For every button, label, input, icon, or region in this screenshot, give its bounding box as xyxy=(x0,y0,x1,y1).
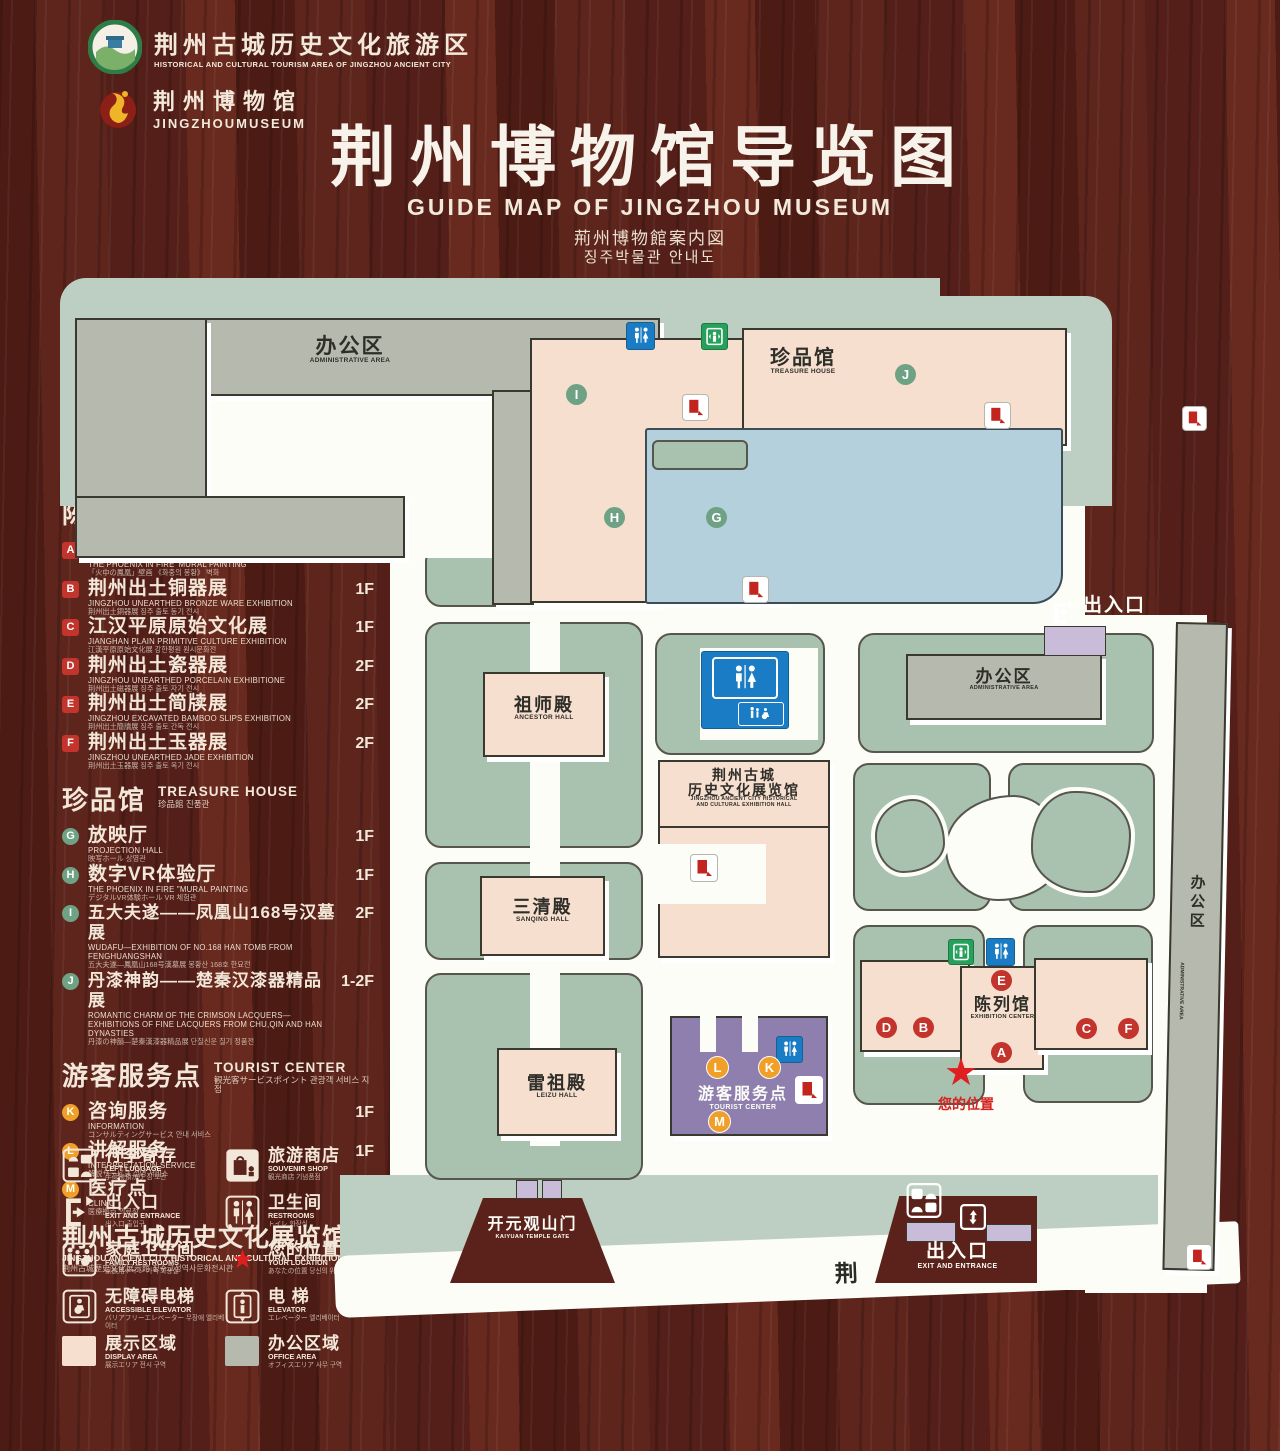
facility-left-luggage: 行李寄存LEFT LUGGAGE手荷物預かり 짐 보관 xyxy=(62,1146,225,1193)
luggage-scanner-icon xyxy=(906,1182,942,1219)
facility-family-restrooms: 家庭卫生间FAMILY RESTROOMS家族用トイレ 가족 화장실 xyxy=(62,1240,225,1287)
badge-c: C xyxy=(62,619,79,636)
item-sub: 丹漆の神韻—楚秦漢漆器精品展 단칠신운 칠기 정품전 xyxy=(88,1038,336,1047)
exhibition-hall-label-block: 荆州古城 历史文化展览馆 JINGZHOU ANCIENT CITY HISTO… xyxy=(658,760,830,830)
facility-en: YOUR LOCATION xyxy=(268,1259,342,1268)
exhibition-hall-label-en2: AND CULTURAL EXHIBITION HALL xyxy=(660,803,828,808)
exit-icon xyxy=(1050,600,1077,627)
legend-office-area: 办公区域OFFICE AREAオフィスエリア 사무 구역 xyxy=(225,1334,388,1381)
sanqing-hall-label: 三清殿 SANQING HALL xyxy=(482,898,603,924)
exhibition-center-label-cn: 陈列馆 xyxy=(945,996,1060,1014)
legend-item-g: G放映厅PROJECTION HALL映写ホール 상영관1F xyxy=(62,826,374,864)
facility-accessible-elevator: 无障碍电梯ACCESSIBLE ELEVATORバリアフリーエレベーター 무장애… xyxy=(62,1287,225,1334)
elevator-icon xyxy=(225,1289,260,1324)
facility-sub: トイレ 화장실 xyxy=(268,1221,322,1229)
item-cn: 咨询服务 xyxy=(88,1102,336,1122)
item-sub: コンサルティングサービス 안내 서비스 xyxy=(88,1131,336,1140)
legend-item-h: H数字VR体验厅THE PHOENIX IN FIRE "MURAL PAINT… xyxy=(62,865,374,903)
item-cn: 荆州出土瓷器展 xyxy=(88,656,336,676)
map-badge-g: G xyxy=(706,507,727,528)
exit-bottom-label-en: EXIT AND ENTRANCE xyxy=(895,1263,1020,1271)
restroom-icon xyxy=(986,938,1015,966)
exit-icon xyxy=(62,1195,97,1230)
facility-en: OFFICE AREA xyxy=(268,1353,342,1362)
legend-item-d: D荆州出土瓷器展JINGZHOU UNEARTHED PORCELAIN EXH… xyxy=(62,656,374,694)
facility-en: DISPLAY AREA xyxy=(105,1353,177,1362)
facility-en: EXIT AND ENTRANCE xyxy=(105,1212,180,1221)
facility-sub: 出入口 출입구 xyxy=(105,1221,180,1229)
admin-r-label-cn: 办公区 xyxy=(908,668,1100,686)
facility-en: LEFT LUGGAGE xyxy=(105,1165,177,1174)
item-sub: 荆州出土簡牘展 징주 출토 간독 전시 xyxy=(88,723,336,732)
facility-en: FAMILY RESTROOMS xyxy=(105,1259,195,1268)
admin-strip-label-en: ADMINISTRATIVE AREA xyxy=(1178,962,1185,1020)
gate-pillar xyxy=(516,1180,538,1199)
facility-en: ACCESSIBLE ELEVATOR xyxy=(105,1306,225,1315)
facility-cn: 家庭卫生间 xyxy=(105,1240,195,1259)
admin-tl-label: 办公区 ADMINISTRATIVE AREA xyxy=(255,336,445,365)
facility-en: RESTROOMS xyxy=(268,1212,322,1221)
item-cn: 荆州出土玉器展 xyxy=(88,733,336,753)
restroom-icon xyxy=(626,322,655,350)
family-restroom-icon xyxy=(738,702,784,726)
legend-item-e: E荆州出土简牍展JINGZHOU EXCAVATED BAMBOO SLIPS … xyxy=(62,694,374,732)
item-cn: 数字VR体验厅 xyxy=(88,865,336,885)
family-restroom-icon xyxy=(62,1242,97,1277)
museum-guide-map-sign: { "header": { "logo1_cn": "荆州古城历史文化旅游区",… xyxy=(0,0,1280,1451)
restroom-icon xyxy=(712,657,778,699)
facility-cn: 行李寄存 xyxy=(105,1146,177,1165)
item-sub: 映写ホール 상영관 xyxy=(88,855,336,864)
kaiyuan-gate-label-en: KAIYUAN TEMPLE GATE xyxy=(455,1234,610,1240)
elevator-icon-red xyxy=(1186,1244,1212,1270)
your-location-star-icon: ★ xyxy=(225,1242,260,1277)
gate-barrier xyxy=(906,1222,956,1242)
facility-sub: 手荷物預かり 짐 보관 xyxy=(105,1174,177,1182)
admin-tl-label-cn: 办公区 xyxy=(255,336,445,358)
facility-sub: オフィスエリア 사무 구역 xyxy=(268,1362,342,1370)
lake-planting xyxy=(652,440,748,470)
badge-d: D xyxy=(62,658,79,675)
item-cn: 放映厅 xyxy=(88,826,336,846)
tourist-center-label: 游客服务点 TOURIST CENTER xyxy=(678,1086,808,1111)
page-title-cn: 荆州博物馆导览图 xyxy=(240,104,1060,200)
elevator-icon-red xyxy=(682,394,709,421)
ancestor-hall-label: 祖师殿 ANCESTOR HALL xyxy=(485,696,603,722)
admin-tl-label-en: ADMINISTRATIVE AREA xyxy=(255,358,445,365)
facility-exit-entrance: 出入口EXIT AND ENTRANCE出入口 출입구 xyxy=(62,1193,225,1240)
legend-display-area: 展示区域DISPLAY AREA展示エリア 전시 구역 xyxy=(62,1334,225,1381)
item-cn: 荆州出土简牍展 xyxy=(88,694,336,714)
map-badge-e: E xyxy=(991,970,1012,991)
garden-area xyxy=(853,763,1155,913)
item-floor: 2F xyxy=(336,733,374,771)
exit-tr-label-en: EXIT AND ENTRANCE xyxy=(1083,617,1203,625)
elevator-icon-red xyxy=(1182,406,1207,431)
exit-bottom-label-cn: 出入口 xyxy=(895,1242,1020,1263)
item-en: ROMANTIC CHARM OF THE CRIMSON LACQUERS— … xyxy=(88,1011,336,1038)
elevator-icon-red xyxy=(742,576,769,603)
item-cn: 荆州出土铜器展 xyxy=(88,579,336,599)
item-cn: 江汉平原原始文化展 xyxy=(88,617,336,637)
facility-cn: 电 梯 xyxy=(268,1287,340,1306)
item-sub: 荆州出土磁器展 징주 출토 자기 전시 xyxy=(88,685,336,694)
facility-cn: 无障碍电梯 xyxy=(105,1287,225,1306)
tourist-center-label-cn: 游客服务点 xyxy=(678,1086,808,1104)
legend-item-f: F荆州出土玉器展JINGZHOU UNEARTHED JADE EXHIBITI… xyxy=(62,733,374,771)
gate-pillar xyxy=(542,1180,562,1199)
admin-r-label: 办公区 ADMINISTRATIVE AREA xyxy=(908,668,1100,692)
section-title-en: TOURIST CENTER xyxy=(214,1061,374,1076)
facility-sub: 家族用トイレ 가족 화장실 xyxy=(105,1268,195,1276)
badge-e: E xyxy=(62,696,79,713)
leizu-hall-label-en: LEIZU HALL xyxy=(499,1093,615,1100)
tourism-area-logo-cn: 荆州古城历史文化旅游区 xyxy=(154,25,473,60)
sanqing-hall: 三清殿 SANQING HALL xyxy=(480,876,605,956)
admin-building-right: 办公区 ADMINISTRATIVE AREA xyxy=(906,654,1102,720)
elevator-icon xyxy=(701,323,728,350)
garden-islet-left xyxy=(875,799,945,873)
elevator-icon-red xyxy=(690,854,718,882)
exhibition-center-label: 陈列馆 EXHIBITION CENTER xyxy=(945,996,1060,1020)
up-down-arrows-icon xyxy=(958,1202,988,1232)
leizu-hall-label: 雷祖殿 LEIZU HALL xyxy=(499,1074,615,1100)
facility-cn: 展示区域 xyxy=(105,1334,177,1353)
badge-i: I xyxy=(62,905,79,922)
item-floor: 1F xyxy=(336,617,374,655)
section-title-sub: 珍品館 진품관 xyxy=(158,800,298,809)
badge-f: F xyxy=(62,735,79,752)
badge-k: K xyxy=(62,1104,79,1121)
kaiyuan-gate-label: 开元观山门 KAIYUAN TEMPLE GATE xyxy=(455,1216,610,1240)
map-badge-b: B xyxy=(913,1017,934,1038)
item-sub: 江漢平原原始文化展 강한평원 원시문화전 xyxy=(88,646,336,655)
legend-item-j: J丹漆神韵——楚秦汉漆器精品展ROMANTIC CHARM OF THE CRI… xyxy=(62,971,374,1047)
ancestor-hall: 祖师殿 ANCESTOR HALL xyxy=(483,672,605,757)
restroom-block xyxy=(701,651,789,729)
sanqing-hall-label-en: SANQING HALL xyxy=(482,917,603,924)
exhibition-center-label-en: EXHIBITION CENTER xyxy=(945,1014,1060,1020)
legend-item-c: C江汉平原原始文化展JIANGHAN PLAIN PRIMITIVE CULTU… xyxy=(62,617,374,655)
item-sub: 五大夫遂—鳳凰山168号漢墓展 봉황산 168호 한묘전 xyxy=(88,961,336,970)
item-cn: 丹漆神韵——楚秦汉漆器精品展 xyxy=(88,971,336,1011)
section-title-cn: 游客服务点 xyxy=(62,1056,202,1093)
map-badge-h: H xyxy=(604,507,625,528)
legend-item-i: I五大夫遂——凤凰山168号汉墓展WUDAFU—EXHIBITION OF NO… xyxy=(62,903,374,970)
facility-sub: バリアフリーエレベーター 무장애 엘리베이터 xyxy=(105,1315,225,1331)
page-title-en: GUIDE MAP OF JINGZHOU MUSEUM xyxy=(240,194,1060,221)
admin-building-bottom-bar xyxy=(75,496,405,558)
facility-en: ELEVATOR xyxy=(268,1306,340,1315)
kaiyuan-gate-label-cn: 开元观山门 xyxy=(455,1216,610,1234)
map-badge-m: M xyxy=(708,1110,731,1133)
legend-item-k: K咨询服务INFORMATIONコンサルティングサービス 안내 서비스1F xyxy=(62,1102,374,1140)
tourist-center-label-en: TOURIST CENTER xyxy=(678,1104,808,1112)
facility-en: SOUVENIR SHOP xyxy=(268,1165,340,1174)
facility-sub: 展示エリア 전시 구역 xyxy=(105,1362,177,1370)
badge-b: B xyxy=(62,581,79,598)
treasure-label-en: TREASURE HOUSE xyxy=(748,369,858,376)
tourist-center-slot xyxy=(742,1016,758,1052)
restroom-icon xyxy=(225,1195,260,1230)
section-title-cn: 珍品馆 xyxy=(62,780,146,817)
map-badge-a: A xyxy=(991,1042,1012,1063)
map-badge-f: F xyxy=(1118,1018,1139,1039)
entrance-gate-ne xyxy=(1044,626,1106,656)
section-title-sub: 観光客サービスポイント 관광객 서비스 지점 xyxy=(214,1076,374,1095)
facility-cn: 卫生间 xyxy=(268,1193,322,1212)
facility-cn: 您的位置 xyxy=(268,1240,342,1259)
ancestor-hall-label-en: ANCESTOR HALL xyxy=(485,715,603,722)
tourism-area-logo-icon xyxy=(88,20,142,74)
legend-item-b: B荆州出土铜器展JINGZHOU UNEARTHED BRONZE WARE E… xyxy=(62,579,374,617)
item-sub: デジタルVR体験ホール VR 체험관 xyxy=(88,894,336,903)
legend-section-treasure-house: 珍品馆 TREASURE HOUSE珍品館 진품관 xyxy=(62,780,374,826)
exhibition-hall-label: 荆州古城 历史文化展览馆 JINGZHOU ANCIENT CITY HISTO… xyxy=(660,768,828,808)
item-floor: 1F xyxy=(336,1102,374,1140)
map-badge-k: K xyxy=(758,1056,781,1079)
item-floor: 1F xyxy=(336,579,374,617)
map-badge-d: D xyxy=(876,1017,897,1038)
leizu-hall: 雷祖殿 LEIZU HALL xyxy=(497,1048,617,1136)
facility-sub: あなたの位置 당신의 위치 xyxy=(268,1268,342,1276)
item-cn: 五大夫遂——凤凰山168号汉墓展 xyxy=(88,903,336,943)
facility-cn: 办公区域 xyxy=(268,1334,342,1353)
facility-sub: 観光商店 기념품점 xyxy=(268,1174,340,1182)
museum-logo-phoenix-icon xyxy=(95,85,141,131)
badge-h: H xyxy=(62,867,79,884)
luggage-icon xyxy=(62,1148,97,1183)
tourist-center-slot xyxy=(700,1016,716,1052)
exhibition-hall-label-cn1: 荆州古城 xyxy=(660,768,828,783)
item-floor: 1-2F xyxy=(336,971,374,1047)
gate-barrier xyxy=(986,1224,1032,1242)
ancestor-hall-label-cn: 祖师殿 xyxy=(485,696,603,715)
page-title-kr: 징주박물관 안내도 xyxy=(240,246,1060,267)
elevator-icon xyxy=(948,939,974,965)
treasure-label-cn: 珍品馆 xyxy=(748,348,858,369)
garden-islet-right xyxy=(1031,791,1131,893)
map-badge-c: C xyxy=(1076,1018,1097,1039)
admin-r-label-en: ADMINISTRATIVE AREA xyxy=(908,686,1100,692)
exit-tr-label: 出入口 EXIT AND ENTRANCE xyxy=(1083,596,1203,625)
exit-bottom-label: 出入口 EXIT AND ENTRANCE xyxy=(895,1242,1020,1271)
legend-section-tourist-center: 游客服务点 TOURIST CENTER観光客サービスポイント 관광객 서비스 … xyxy=(62,1056,374,1102)
display-area-swatch xyxy=(62,1336,97,1371)
leizu-hall-label-cn: 雷祖殿 xyxy=(499,1074,615,1093)
facility-cn: 出入口 xyxy=(105,1193,180,1212)
exhibition-hall-label-cn2: 历史文化展览馆 xyxy=(660,783,828,798)
item-sub: 荆州出土銅器展 징주 출토 동기 전시 xyxy=(88,608,336,617)
item-floor: 2F xyxy=(336,903,374,970)
item-floor: 1F xyxy=(336,865,374,903)
item-floor: 1F xyxy=(336,826,374,864)
elevator-icon-red xyxy=(984,402,1011,429)
item-sub: 荆州出土玉器展 징주 출토 옥기 전시 xyxy=(88,762,336,771)
map-badge-j: J xyxy=(895,364,916,385)
restroom-icon xyxy=(776,1036,803,1063)
facility-cn: 旅游商店 xyxy=(268,1146,340,1165)
map-badge-l: L xyxy=(706,1056,729,1079)
tourism-area-logo-en: HISTORICAL AND CULTURAL TOURISM AREA OF … xyxy=(154,60,473,69)
office-area-swatch xyxy=(225,1336,260,1371)
shop-icon xyxy=(225,1148,260,1183)
your-location-star-icon: ★ xyxy=(944,1054,978,1092)
item-en: WUDAFU—EXHIBITION OF NO.168 HAN TOMB FRO… xyxy=(88,943,336,961)
your-location-label: 您的位置 xyxy=(918,1094,1014,1114)
sanqing-hall-label-cn: 三清殿 xyxy=(482,898,603,917)
badge-g: G xyxy=(62,828,79,845)
treasure-label: 珍品馆 TREASURE HOUSE xyxy=(748,348,858,376)
map-badge-i: I xyxy=(566,384,587,405)
admin-strip-label-cn: 办公区 xyxy=(1186,874,1208,931)
badge-j: J xyxy=(62,973,79,990)
item-sub: 「火中の鳳凰」壁画 《화중의 봉황》 벽화 xyxy=(88,569,336,578)
elevator-icon-red xyxy=(795,1076,823,1104)
section-title-en: TREASURE HOUSE xyxy=(158,785,298,800)
exit-tr-label-cn: 出入口 xyxy=(1083,596,1203,617)
accessible-elevator-icon xyxy=(62,1289,97,1324)
item-floor: 2F xyxy=(336,694,374,732)
tourism-area-logo: 荆州古城历史文化旅游区 HISTORICAL AND CULTURAL TOUR… xyxy=(88,20,473,74)
item-floor: 2F xyxy=(336,656,374,694)
facility-sub: エレベーター 엘리베이터 xyxy=(268,1315,340,1323)
